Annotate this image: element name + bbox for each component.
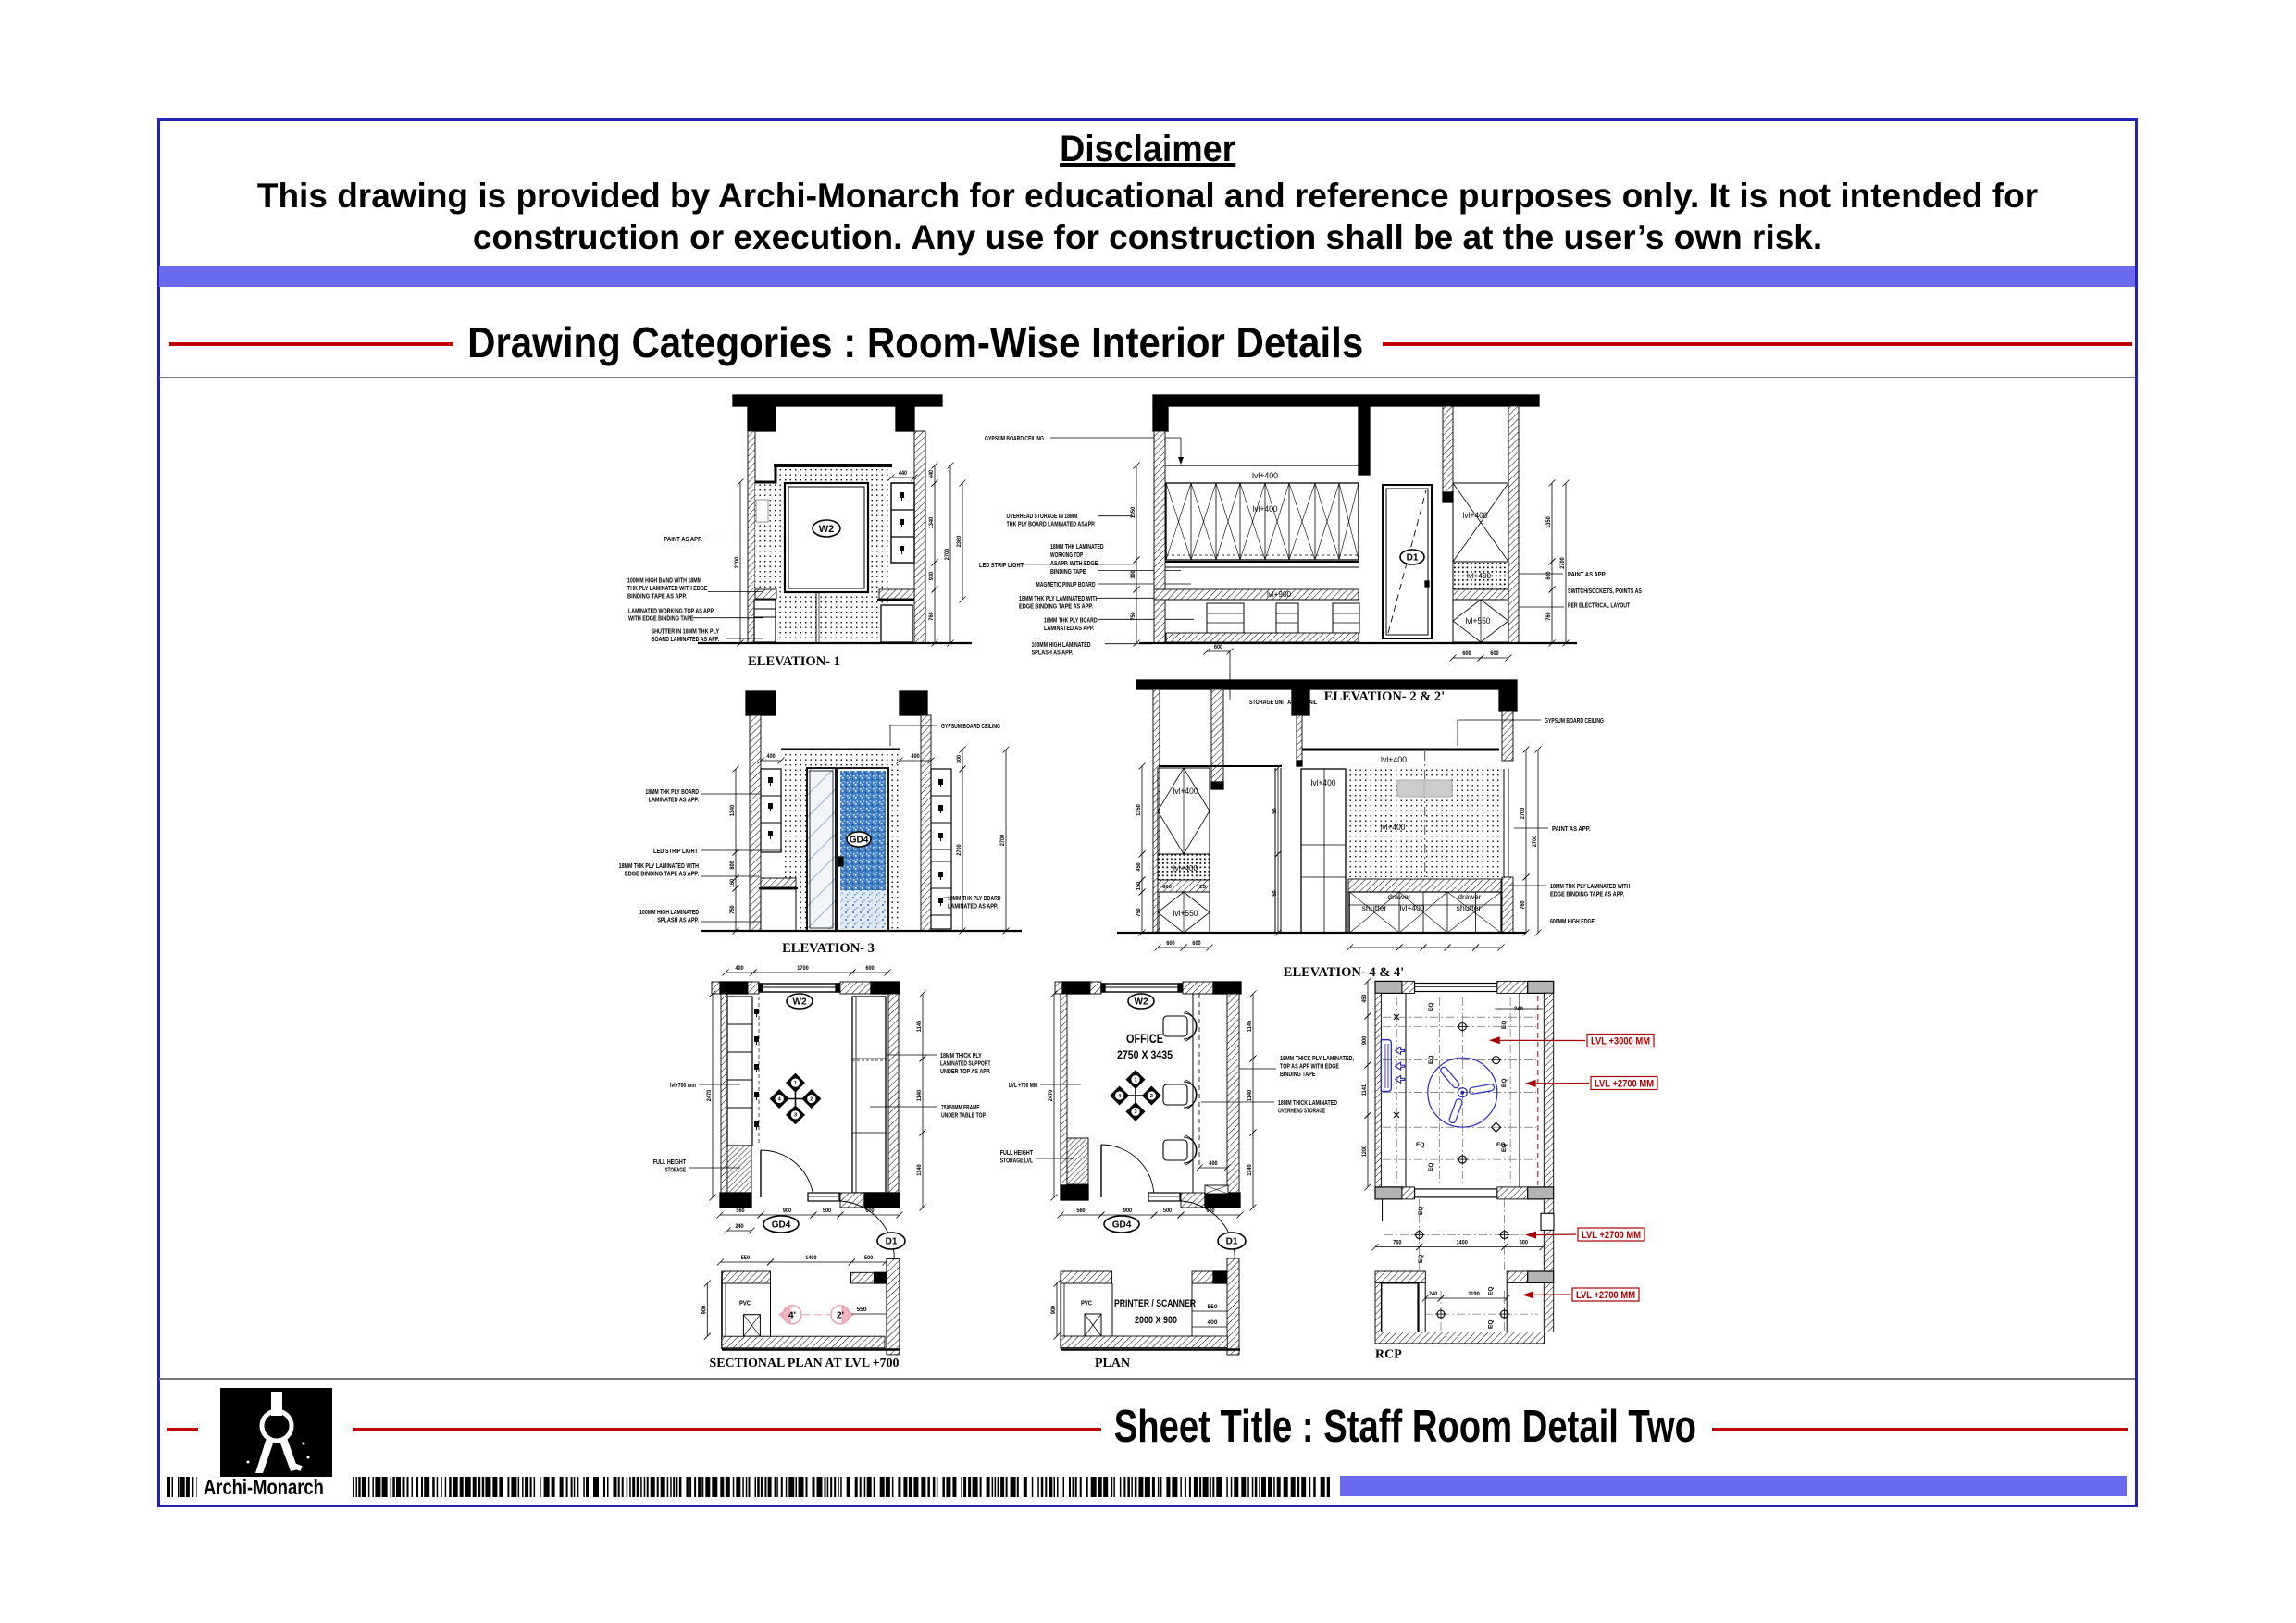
svg-text:560: 560 <box>736 1208 745 1214</box>
svg-text:900: 900 <box>1361 1035 1368 1045</box>
svg-text:GD4: GD4 <box>850 836 869 846</box>
svg-text:550: 550 <box>857 1307 867 1313</box>
svg-text:UNDER TABLE TOP: UNDER TABLE TOP <box>941 1111 986 1120</box>
svg-text:EQ: EQ <box>1488 1320 1495 1329</box>
svg-text:THK PLY BOARD LAMINATED ASAPP.: THK PLY BOARD LAMINATED ASAPP. <box>1007 520 1096 528</box>
svg-text:EQ: EQ <box>1428 1056 1434 1064</box>
svg-text:500: 500 <box>864 1255 874 1261</box>
svg-text:600: 600 <box>1545 571 1552 580</box>
svg-text:D1: D1 <box>1226 1237 1238 1247</box>
svg-text:900: 900 <box>783 1208 792 1214</box>
svg-text:EQ: EQ <box>1416 1142 1424 1148</box>
svg-text:EQ: EQ <box>1428 1003 1434 1011</box>
svg-text:3: 3 <box>794 1113 797 1119</box>
svg-text:1350: 1350 <box>1136 804 1142 816</box>
svg-text:lvl+400: lvl+400 <box>1381 823 1406 832</box>
svg-text:930: 930 <box>928 572 935 581</box>
svg-text:lvl+900: lvl+900 <box>1267 590 1292 599</box>
svg-text:760: 760 <box>1393 1240 1402 1246</box>
svg-text:1: 1 <box>1134 1078 1136 1084</box>
svg-text:STORAGE: STORAGE <box>665 1166 686 1174</box>
svg-text:600: 600 <box>1490 650 1499 657</box>
svg-text:1400: 1400 <box>1456 1240 1468 1246</box>
svg-text:EQ: EQ <box>1501 1079 1508 1087</box>
svg-text:500: 500 <box>823 1208 832 1214</box>
svg-text:300: 300 <box>1130 570 1136 579</box>
svg-text:lvl+400: lvl+400 <box>1173 787 1198 796</box>
svg-text:WITH EDGE BINDING TAPE: WITH EDGE BINDING TAPE <box>628 614 693 623</box>
svg-text:drawer: drawer <box>1388 892 1411 901</box>
svg-text:50: 50 <box>1272 890 1278 897</box>
svg-text:SPLASH AS APP.: SPLASH AS APP. <box>657 916 699 924</box>
svg-text:240: 240 <box>1429 1291 1438 1297</box>
svg-text:PAINT AS APP.: PAINT AS APP. <box>1568 570 1607 578</box>
svg-text:50: 50 <box>1272 808 1278 814</box>
svg-text:EDGE BINDING TAPE AS APP.: EDGE BINDING TAPE AS APP. <box>625 870 699 878</box>
svg-text:LVL +2700 MM: LVL +2700 MM <box>1576 1290 1635 1301</box>
svg-text:400: 400 <box>1208 1319 1218 1326</box>
svg-text:2': 2' <box>837 1310 844 1320</box>
svg-text:600: 600 <box>1192 940 1201 947</box>
svg-text:lvl+400: lvl+400 <box>1252 471 1278 481</box>
svg-text:EQ: EQ <box>1488 1287 1495 1295</box>
svg-text:18MM THK LAMINATED: 18MM THK LAMINATED <box>1050 542 1104 551</box>
svg-text:400: 400 <box>735 965 744 972</box>
svg-text:1350: 1350 <box>1545 516 1552 528</box>
svg-text:EQ: EQ <box>1418 1207 1424 1215</box>
svg-text:450: 450 <box>1361 994 1368 1003</box>
svg-text:ELEVATION- 1: ELEVATION- 1 <box>748 654 840 669</box>
svg-text:900: 900 <box>701 1306 707 1315</box>
svg-text:600: 600 <box>1166 940 1175 947</box>
svg-text:LVL +2700 MM: LVL +2700 MM <box>1582 1230 1641 1241</box>
svg-text:3: 3 <box>1134 1109 1136 1115</box>
svg-text:lvl+400: lvl+400 <box>1467 572 1492 580</box>
svg-text:900: 900 <box>1050 1306 1057 1315</box>
svg-text:lvl+400: lvl+400 <box>1463 511 1488 520</box>
svg-text:150: 150 <box>1136 882 1142 891</box>
svg-text:BINDING TAPE: BINDING TAPE <box>1050 567 1086 576</box>
svg-text:160: 160 <box>729 879 736 888</box>
svg-text:2700: 2700 <box>944 548 950 560</box>
svg-text:lvl+400: lvl+400 <box>1400 903 1425 912</box>
svg-text:2470: 2470 <box>1048 1089 1054 1101</box>
svg-text:440: 440 <box>899 470 908 477</box>
svg-text:1700: 1700 <box>797 965 809 972</box>
svg-text:1140: 1140 <box>1247 1089 1253 1101</box>
svg-text:1140: 1140 <box>916 1164 923 1176</box>
svg-text:2360: 2360 <box>956 535 962 547</box>
svg-text:SWITCH/SOCKETS, POINTS AS: SWITCH/SOCKETS, POINTS AS <box>1568 587 1642 595</box>
svg-text:LED STRIP LIGHT: LED STRIP LIGHT <box>979 561 1024 569</box>
svg-text:1350: 1350 <box>1130 506 1136 518</box>
svg-text:PER ELECTRICAL LAYOUT: PER ELECTRICAL LAYOUT <box>1568 601 1630 610</box>
svg-text:1: 1 <box>794 1081 797 1086</box>
svg-text:STORAGE LVL: STORAGE LVL <box>1000 1157 1033 1165</box>
svg-text:lvl+400: lvl+400 <box>1311 778 1336 787</box>
svg-text:900: 900 <box>1123 1208 1133 1214</box>
svg-text:1140: 1140 <box>916 1089 923 1101</box>
svg-text:GYPSUM BOARD CEILING: GYPSUM BOARD CEILING <box>1545 716 1604 725</box>
svg-text:GD4: GD4 <box>1112 1220 1132 1231</box>
svg-text:2000 X 900: 2000 X 900 <box>1135 1315 1177 1326</box>
svg-text:GD4: GD4 <box>772 1220 791 1231</box>
svg-text:UNDER TOP AS APP.: UNDER TOP AS APP. <box>940 1067 990 1075</box>
svg-text:760: 760 <box>928 612 935 621</box>
svg-text:400: 400 <box>1209 1160 1218 1167</box>
svg-text:600: 600 <box>1162 885 1172 890</box>
svg-text:1340: 1340 <box>928 516 935 528</box>
svg-text:600: 600 <box>1462 650 1471 657</box>
svg-text:W2: W2 <box>793 997 807 1008</box>
svg-text:RCP: RCP <box>1375 1348 1402 1362</box>
svg-text:PAINT AS APP.: PAINT AS APP. <box>664 535 702 543</box>
svg-text:2: 2 <box>810 1096 813 1102</box>
svg-text:1145: 1145 <box>1247 1020 1253 1032</box>
svg-text:400: 400 <box>911 753 920 760</box>
svg-text:LAMINATED AS APP.: LAMINATED AS APP. <box>1044 624 1094 632</box>
svg-text:2700: 2700 <box>1532 835 1538 847</box>
svg-text:550: 550 <box>1208 1304 1218 1310</box>
svg-text:OFFICE: OFFICE <box>1126 1031 1163 1046</box>
svg-text:EQ: EQ <box>1496 1142 1505 1148</box>
svg-text:240: 240 <box>735 1223 744 1230</box>
svg-text:BINDING TAPE: BINDING TAPE <box>1280 1070 1315 1078</box>
svg-text:400: 400 <box>766 753 776 760</box>
svg-text:2700: 2700 <box>734 556 740 568</box>
svg-text:1141: 1141 <box>1361 1084 1368 1096</box>
svg-text:1140: 1140 <box>1247 1164 1253 1176</box>
svg-text:760: 760 <box>1545 612 1552 621</box>
svg-text:550: 550 <box>741 1255 751 1261</box>
svg-text:PVC: PVC <box>739 1301 751 1307</box>
svg-text:2750 X 3435: 2750 X 3435 <box>1117 1048 1173 1061</box>
svg-text:600: 600 <box>865 1208 875 1214</box>
svg-text:D1: D1 <box>1407 553 1419 564</box>
svg-text:300: 300 <box>956 755 962 764</box>
svg-text:lvl+550: lvl+550 <box>1466 616 1491 626</box>
svg-text:2700: 2700 <box>1559 557 1566 569</box>
svg-text:760: 760 <box>1520 900 1526 910</box>
svg-text:D1: D1 <box>886 1237 898 1247</box>
svg-text:PRINTER / SCANNER: PRINTER / SCANNER <box>1114 1298 1196 1309</box>
svg-text:drawer: drawer <box>1458 892 1482 901</box>
svg-text:600: 600 <box>1520 1240 1529 1246</box>
svg-text:LAMINATED AS APP.: LAMINATED AS APP. <box>649 796 699 804</box>
svg-text:25: 25 <box>1199 885 1206 890</box>
svg-text:240: 240 <box>1514 1006 1523 1012</box>
svg-text:BINDING TAPE AS APP.: BINDING TAPE AS APP. <box>627 592 687 601</box>
svg-text:GYPSUM BOARD CEILING: GYPSUM BOARD CEILING <box>985 434 1044 442</box>
svg-text:500: 500 <box>1163 1208 1173 1214</box>
svg-text:EQ: EQ <box>1418 1255 1424 1263</box>
svg-text:EQ: EQ <box>1428 1163 1434 1171</box>
svg-text:ELEVATION- 3: ELEVATION- 3 <box>782 941 875 956</box>
svg-text:GYPSUM BOARD CEILING: GYPSUM BOARD CEILING <box>941 722 1000 730</box>
svg-text:LVL +700 MM: LVL +700 MM <box>1009 1081 1037 1089</box>
svg-text:PLAN: PLAN <box>1095 1357 1130 1370</box>
svg-text:EDGE BINDING TAPE AS APP.: EDGE BINDING TAPE AS APP. <box>1019 602 1093 611</box>
svg-text:600: 600 <box>1206 1208 1215 1214</box>
svg-text:2470: 2470 <box>706 1089 713 1101</box>
svg-text:LAMINATED AS APP.: LAMINATED AS APP. <box>948 902 998 911</box>
svg-text:4': 4' <box>788 1310 796 1320</box>
svg-text:600MM HIGH EDGE: 600MM HIGH EDGE <box>1550 917 1595 925</box>
svg-text:shutter: shutter <box>1457 903 1482 912</box>
svg-text:2700: 2700 <box>956 844 962 856</box>
svg-text:1190: 1190 <box>1468 1291 1480 1297</box>
svg-text:PVC: PVC <box>1081 1301 1092 1307</box>
svg-text:750: 750 <box>1136 908 1142 917</box>
svg-text:lvl+700 mm: lvl+700 mm <box>670 1081 696 1089</box>
svg-text:560: 560 <box>1076 1208 1086 1214</box>
svg-text:2700: 2700 <box>1520 807 1526 819</box>
svg-text:1200: 1200 <box>1361 1146 1368 1158</box>
svg-text:W2: W2 <box>819 524 835 535</box>
svg-text:LVL +3000 MM: LVL +3000 MM <box>1591 1036 1650 1047</box>
svg-text:440: 440 <box>928 470 935 479</box>
svg-text:SPLASH AS APP.: SPLASH AS APP. <box>1032 649 1074 657</box>
svg-text:MAGNETIC PINUP BOARD: MAGNETIC PINUP BOARD <box>1036 580 1096 588</box>
svg-text:800: 800 <box>729 861 736 870</box>
svg-text:ASAPP. WITH EDGE: ASAPP. WITH EDGE <box>1050 559 1098 567</box>
svg-text:750: 750 <box>1130 612 1136 621</box>
svg-text:EQ: EQ <box>1501 1021 1508 1029</box>
svg-text:BOARD LAMINATED AS APP.: BOARD LAMINATED AS APP. <box>652 635 720 643</box>
svg-text:ELEVATION- 2 & 2': ELEVATION- 2 & 2' <box>1324 689 1445 704</box>
svg-text:ELEVATION- 4 & 4': ELEVATION- 4 & 4' <box>1284 965 1404 980</box>
svg-text:450: 450 <box>1136 862 1142 872</box>
svg-text:1145: 1145 <box>916 1020 923 1032</box>
svg-text:PAINT AS APP.: PAINT AS APP. <box>1552 824 1591 833</box>
svg-text:lvl+400: lvl+400 <box>1173 864 1198 873</box>
svg-text:LED STRIP LIGHT: LED STRIP LIGHT <box>653 847 698 855</box>
svg-text:lvl+400: lvl+400 <box>1381 755 1407 765</box>
svg-text:SECTIONAL PLAN AT LVL +700: SECTIONAL PLAN AT LVL +700 <box>710 1357 900 1370</box>
svg-text:600: 600 <box>865 965 875 972</box>
svg-text:lvl+400: lvl+400 <box>1253 504 1278 514</box>
svg-text:600: 600 <box>1214 644 1223 650</box>
svg-text:2: 2 <box>1150 1094 1153 1099</box>
svg-text:OVERHEAD STORAGE: OVERHEAD STORAGE <box>1278 1107 1325 1115</box>
svg-text:1400: 1400 <box>805 1255 817 1261</box>
svg-text:W2: W2 <box>1135 997 1148 1008</box>
svg-text:lvl+550: lvl+550 <box>1173 909 1198 918</box>
svg-text:1340: 1340 <box>729 804 736 816</box>
svg-text:shutter: shutter <box>1362 903 1387 912</box>
svg-text:750: 750 <box>729 905 736 914</box>
svg-text:2700: 2700 <box>999 834 1006 846</box>
svg-text:LVL +2700 MM: LVL +2700 MM <box>1595 1079 1654 1090</box>
svg-text:WORKING TOP: WORKING TOP <box>1050 551 1083 559</box>
svg-text:EDGE BINDING TAPE AS APP.: EDGE BINDING TAPE AS APP. <box>1550 890 1624 898</box>
